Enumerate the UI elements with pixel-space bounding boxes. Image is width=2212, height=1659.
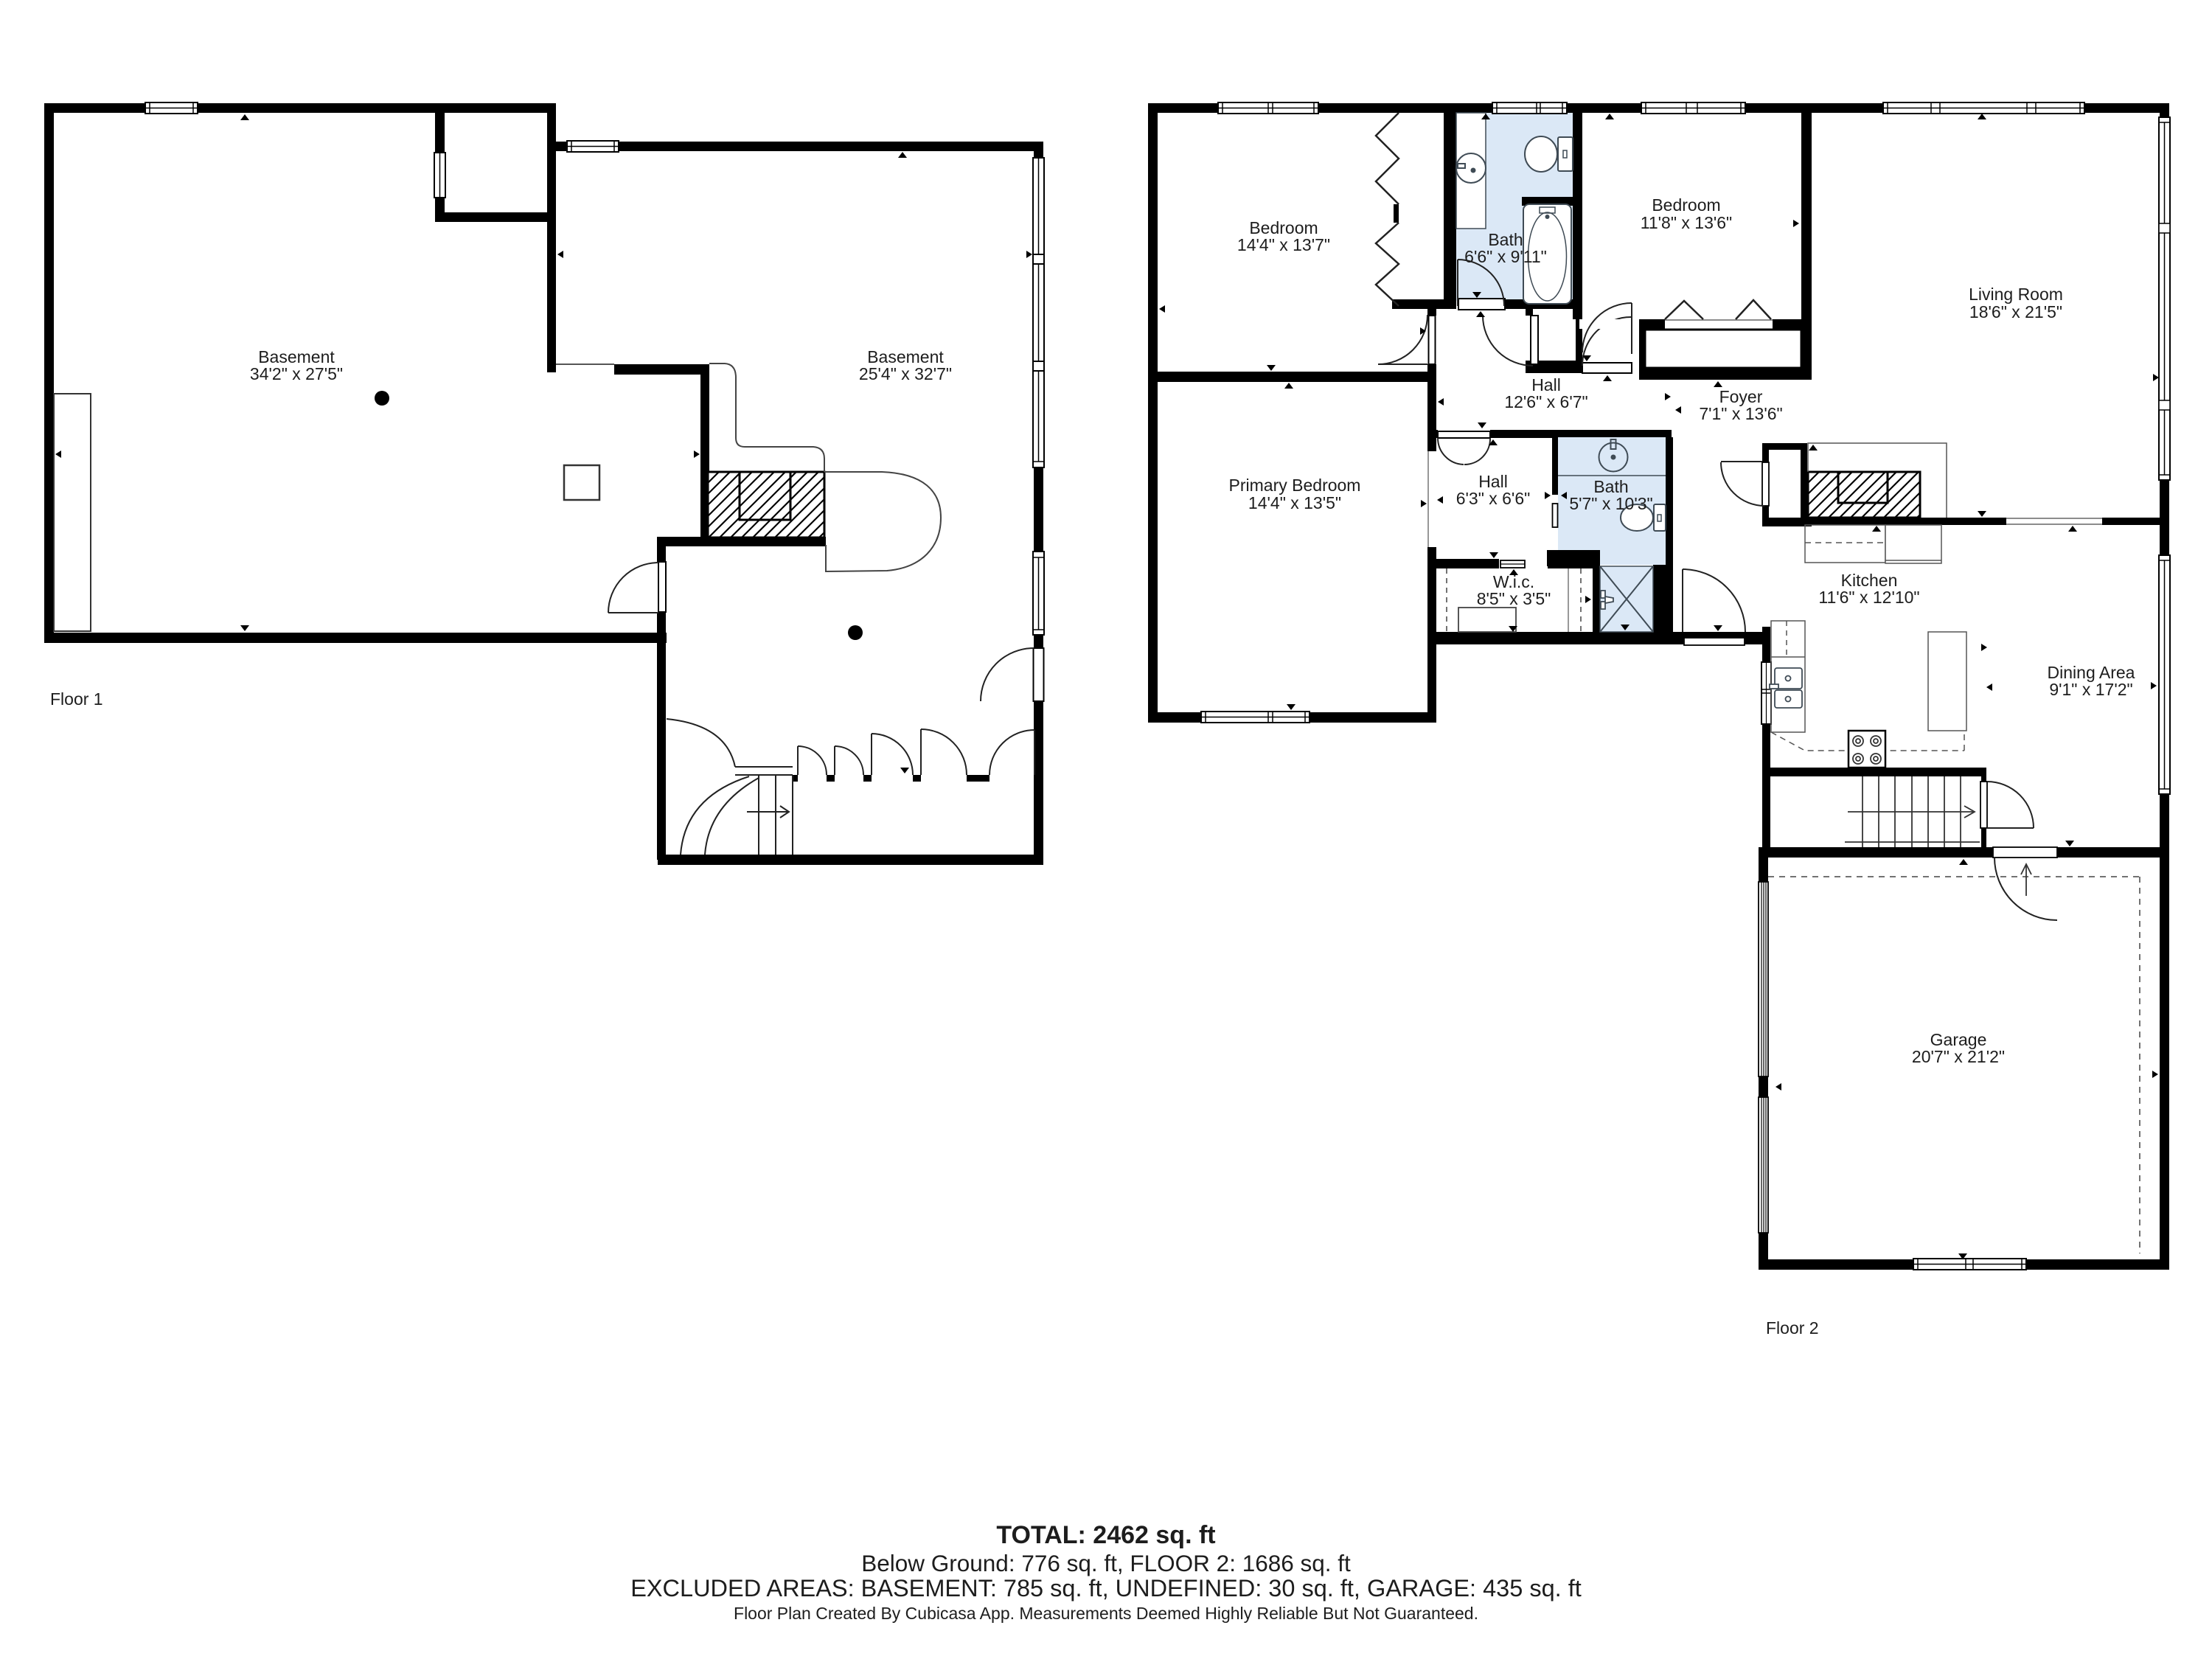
svg-text:34'2" x 27'5": 34'2" x 27'5" [250, 364, 343, 383]
svg-text:Bedroom: Bedroom [1652, 195, 1720, 215]
svg-text:5'7" x 10'3": 5'7" x 10'3" [1569, 494, 1652, 513]
svg-text:9'1" x 17'2": 9'1" x 17'2" [2049, 680, 2132, 699]
svg-text:Floor Plan Created By Cubicasa: Floor Plan Created By Cubicasa App. Meas… [734, 1604, 1478, 1623]
svg-text:Below Ground: 776 sq. ft, FLOO: Below Ground: 776 sq. ft, FLOOR 2: 1686 … [861, 1550, 1351, 1576]
svg-text:25'4" x 32'7": 25'4" x 32'7" [859, 364, 952, 383]
svg-text:11'6" x 12'10": 11'6" x 12'10" [1818, 588, 1919, 607]
svg-text:Primary Bedroom: Primary Bedroom [1229, 476, 1361, 495]
svg-text:20'7" x 21'2": 20'7" x 21'2" [1912, 1047, 2005, 1066]
svg-text:6'3" x 6'6": 6'3" x 6'6" [1456, 489, 1531, 508]
svg-text:8'5" x 3'5": 8'5" x 3'5" [1477, 589, 1551, 608]
svg-text:EXCLUDED AREAS: BASEMENT: 785: EXCLUDED AREAS: BASEMENT: 785 sq. ft, UN… [630, 1575, 1582, 1601]
svg-text:14'4" x 13'5": 14'4" x 13'5" [1248, 493, 1341, 512]
svg-text:12'6" x 6'7": 12'6" x 6'7" [1504, 392, 1587, 411]
svg-text:11'8" x 13'6": 11'8" x 13'6" [1641, 213, 1732, 232]
svg-text:7'1" x 13'6": 7'1" x 13'6" [1699, 404, 1782, 423]
svg-text:6'6" x 9'11": 6'6" x 9'11" [1464, 247, 1547, 266]
svg-text:TOTAL: 2462 sq. ft: TOTAL: 2462 sq. ft [996, 1521, 1215, 1549]
svg-text:Living Room: Living Room [1969, 285, 2063, 304]
svg-text:18'6" x 21'5": 18'6" x 21'5" [1969, 302, 2062, 321]
svg-text:Floor 1: Floor 1 [50, 689, 103, 709]
svg-text:Floor 2: Floor 2 [1766, 1318, 1819, 1338]
svg-text:14'4" x 13'7": 14'4" x 13'7" [1237, 235, 1330, 254]
